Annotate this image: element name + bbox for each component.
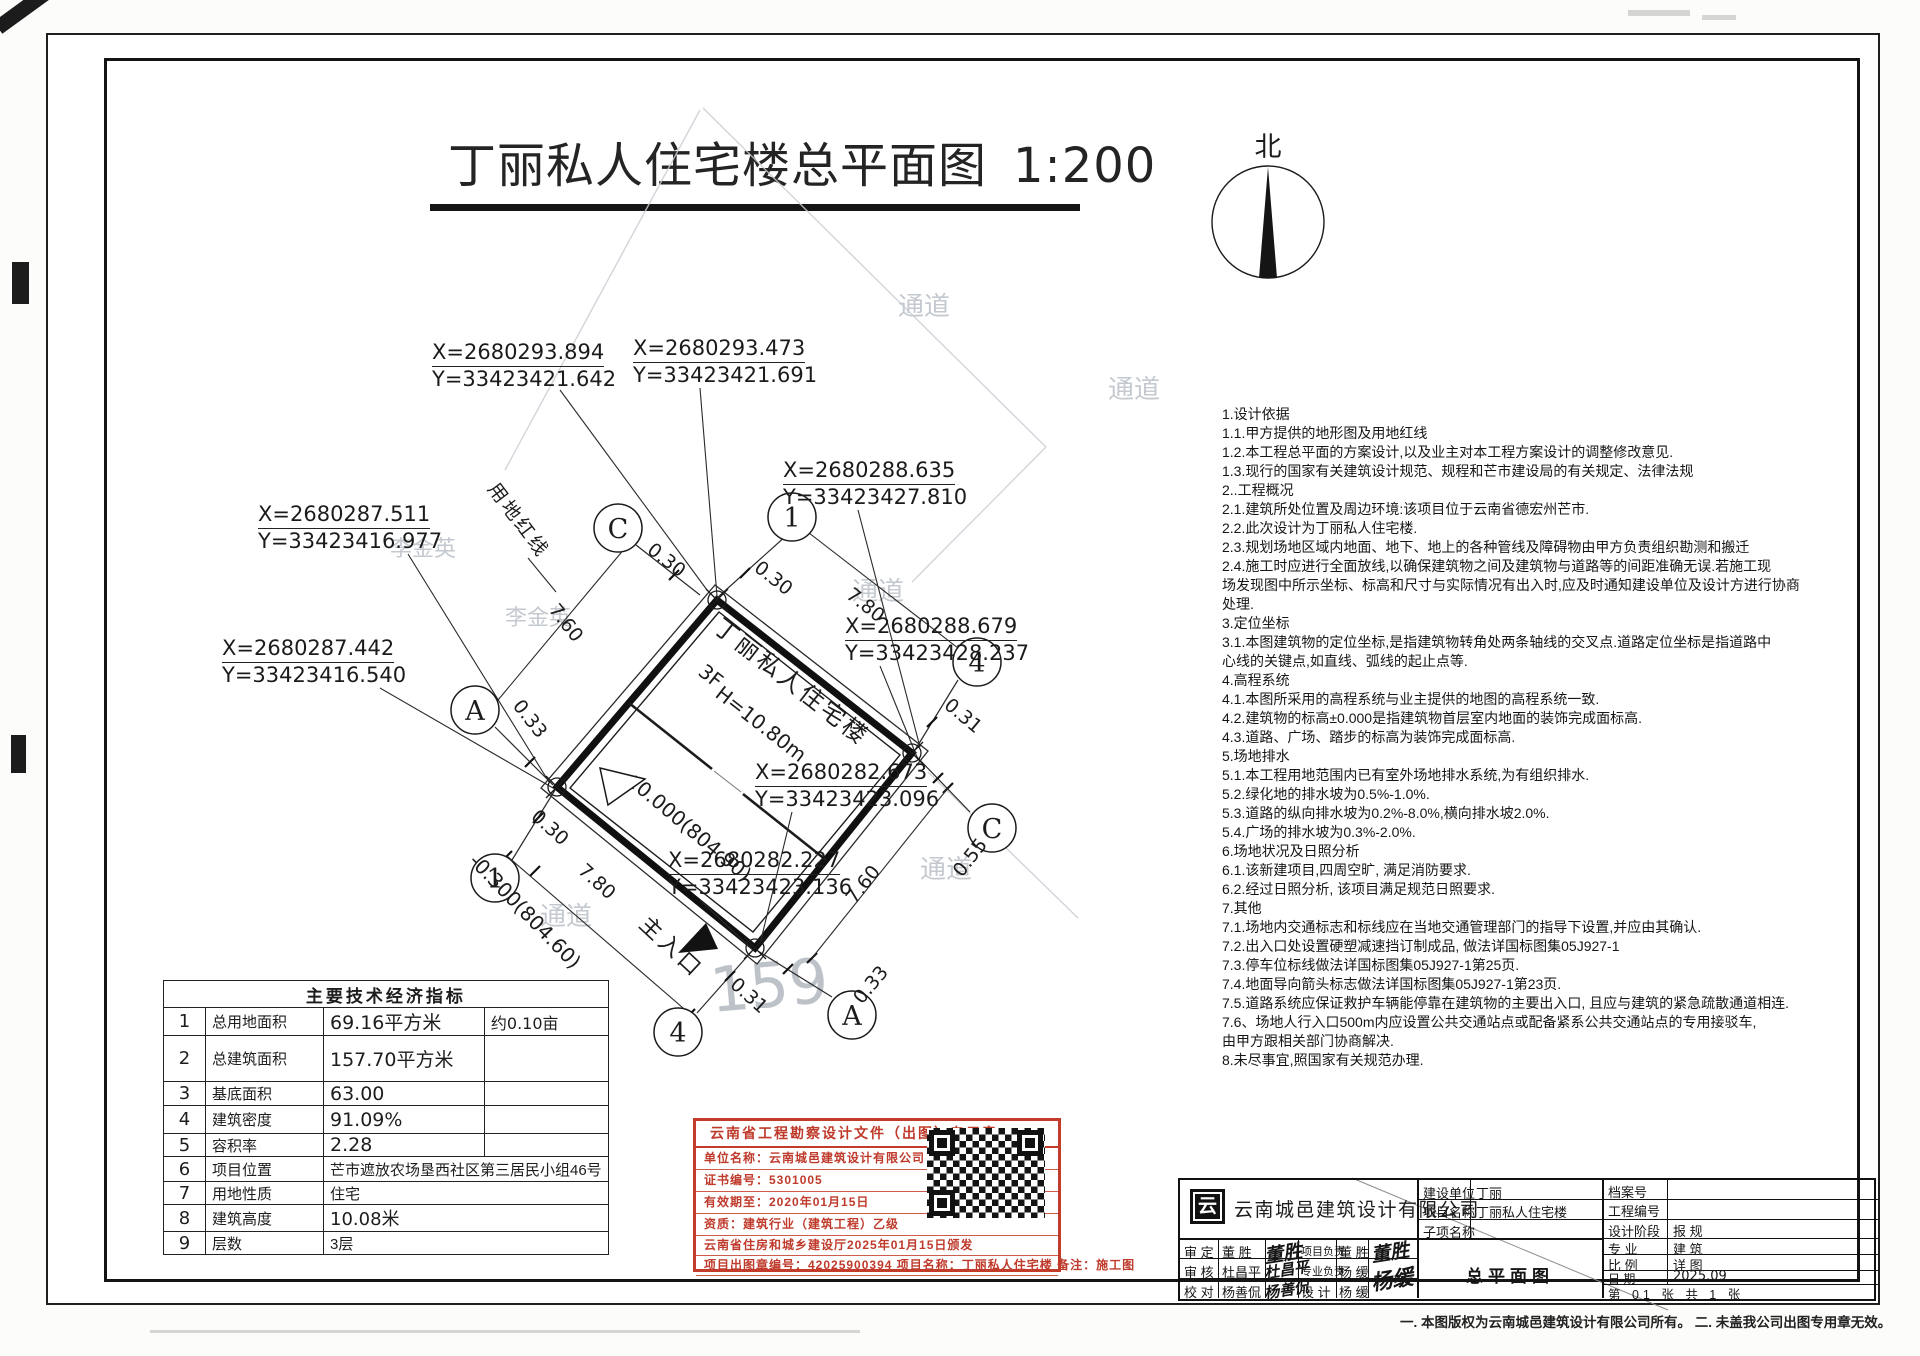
note-line: 2..工程概况	[1222, 481, 1862, 500]
north-label: 北	[1255, 132, 1282, 162]
qr-finder	[929, 1130, 955, 1156]
dim-value: 0.30	[643, 539, 690, 582]
coord-y: Y=33423421.642	[432, 367, 616, 392]
coord-x: X=2680293.473	[633, 336, 805, 363]
table-row: 3 基底面积 63.00	[164, 1082, 609, 1106]
coord-y: Y=33423416.540	[222, 663, 406, 688]
note-line: 7.其他	[1222, 899, 1862, 918]
north-needle	[1259, 167, 1277, 278]
note-line: 7.3.停车位标线做法详国标图集05J927-1第25页.	[1222, 956, 1862, 975]
stamp-line: 项目出图章编号：42025900394 项目名称：丁丽私人住宅楼 备注：施工图	[696, 1256, 1058, 1276]
note-line: 5.3.道路的纵向排水坡为0.2%-8.0%,横向排水坡2.0%.	[1222, 804, 1862, 823]
note-line: 心线的关键点,如直线、弧线的起止点等.	[1222, 652, 1862, 671]
coord-y: Y=33423423.136	[668, 875, 852, 900]
table-row: 1 总用地面积 69.16平方米 约0.10亩	[164, 1008, 609, 1036]
titleblock-divider	[1667, 1180, 1668, 1284]
dim-value: 0.30	[527, 805, 573, 850]
ghost-label: 通道	[898, 291, 950, 321]
coord-label: X=2680287.511 Y=33423416.977	[258, 502, 442, 554]
official-red-stamp: 云南省工程勘察设计文件（出图）专用章 单位名称：云南城邑建筑设计有限公司 证书编…	[693, 1118, 1061, 1272]
stage-label: 设计阶段	[1608, 1221, 1660, 1240]
dim-value: 0.33	[508, 696, 551, 743]
table-row: 5 容积率 2.28	[164, 1134, 609, 1157]
coord-label: X=2680293.473 Y=33423421.691	[633, 336, 817, 388]
dim-value: 0.31	[940, 694, 987, 738]
note-line: 2.3.规划场地区域内地面、地下、地上的各种管线及障碍物由甲方负责组织勘测和搬迁	[1222, 538, 1862, 557]
note-line: 4.2.建筑物的标高±0.000是指建筑物首层室内地面的装饰完成面标高.	[1222, 709, 1862, 728]
role-name: 杨 缓	[1339, 1262, 1369, 1281]
date-value: 2025.09	[1673, 1269, 1727, 1284]
stamp-line: 云南省住房和城乡建设厅2025年01月15日颁发	[696, 1236, 1058, 1256]
note-line: 1.2.本工程总平面的方案设计,以及业主对本工程方案设计的调整修改意见.	[1222, 443, 1862, 462]
axis-bubble-label: C	[982, 814, 1003, 845]
note-line: 3.定位坐标	[1222, 614, 1862, 633]
note-line: 5.1.本工程用地范围内已有室外场地排水系统,为有组织排水.	[1222, 766, 1862, 785]
role-name: 杜昌平	[1222, 1262, 1261, 1281]
north-arrow: 北	[1212, 132, 1324, 278]
coord-label: X=2680287.442 Y=33423416.540	[222, 636, 406, 688]
table-row: 8 建筑高度 10.08米	[164, 1205, 609, 1232]
note-line: 6.1.该新建项目,四周空旷, 满足消防要求.	[1222, 861, 1862, 880]
sheet-info: 第 01 张 共 1 张	[1608, 1284, 1744, 1303]
note-line: 5.4.广场的排水坡为0.3%-2.0%.	[1222, 823, 1862, 842]
coord-x: X=2680287.442	[222, 636, 394, 663]
table-row: 6 项目位置 芒市遮放农场垦西社区第三居民小组46号	[164, 1157, 609, 1182]
note-line: 7.6、场地人行入口500m内应设置公共交通站点或配备紧系公共交通站点的专用接驳…	[1222, 1013, 1862, 1032]
coord-y: Y=33423416.977	[258, 529, 442, 554]
coord-y: Y=33423428.237	[845, 641, 1029, 666]
role-name: 董 胜	[1222, 1242, 1252, 1261]
coord-y: Y=33423423.096	[755, 787, 939, 812]
title-block: 云 云南城邑建筑设计有限公司 建设单位 丁丽 项目名称 丁丽私人住宅楼 子项名称…	[1178, 1178, 1876, 1301]
note-line: 5.2.绿化地的排水坡为0.5%-1.0%.	[1222, 785, 1862, 804]
note-line: 1.3.现行的国家有关建筑设计规范、规程和芒市建设局的有关规定、法律法规	[1222, 462, 1862, 481]
axis-bubble-label: A	[841, 1001, 862, 1032]
role-label: 审 定	[1184, 1242, 1214, 1261]
coord-label: X=2680288.679 Y=33423428.237	[845, 614, 1029, 666]
note-line: 6.场地状况及日照分析	[1222, 842, 1862, 861]
copyright-footnote: 一. 本图版权为云南城邑建筑设计有限公司所有。 二. 未盖我公司出图专用章无效。	[1400, 1311, 1891, 1331]
table-row: 4 建筑密度 91.09%	[164, 1106, 609, 1134]
coord-x: X=2680293.894	[432, 340, 604, 367]
note-line: 4.高程系统	[1222, 671, 1862, 690]
company-logo: 云	[1190, 1189, 1225, 1224]
qr-finder	[1017, 1130, 1043, 1156]
note-line: 2.4.施工时应进行全面放线,以确保建筑物之间及建筑物与道路等的间距准确无误.若…	[1222, 557, 1862, 576]
coord-label: X=2680288.635 Y=33423427.810	[783, 458, 967, 510]
project-label: 项目名称	[1423, 1202, 1475, 1221]
role-name: 杨 缓	[1339, 1282, 1369, 1301]
axis-bubble-label: C	[608, 514, 629, 545]
note-line: 7.1.场地内交通标志和标线应在当地交通管理部门的指导下设置,并应由其确认.	[1222, 918, 1862, 937]
archive-label: 档案号	[1608, 1182, 1647, 1201]
coord-x: X=2680282.673	[755, 760, 927, 787]
note-line: 2.1.建筑所处位置及周边环境:该项目位于云南省德宏州芒市.	[1222, 500, 1862, 519]
table-title: 主要技术经济指标	[164, 981, 609, 1008]
titleblock-divider	[1218, 1238, 1219, 1298]
table-row: 9 层数 3层	[164, 1232, 609, 1255]
qr-finder	[929, 1190, 955, 1216]
dim-value: 0.30	[750, 557, 797, 600]
coord-x: X=2680287.511	[258, 502, 430, 529]
subproject-label: 子项名称	[1423, 1222, 1475, 1241]
coord-x: X=2680282.227	[668, 848, 840, 875]
role-signature: 杨缓	[1369, 1261, 1415, 1297]
titleblock-divider	[1602, 1270, 1878, 1271]
coord-label: X=2680282.673 Y=33423423.096	[755, 760, 939, 812]
axis-bubble-label: A	[464, 696, 485, 727]
note-line: 4.3.道路、广场、踏步的标高为装饰完成面标高.	[1222, 728, 1862, 747]
coord-x: X=2680288.679	[845, 614, 1017, 641]
table-row: 2 总建筑面积 157.70平方米	[164, 1036, 609, 1082]
general-notes: 1.设计依据 1.1.甲方提供的地形图及用地红线 1.2.本工程总平面的方案设计…	[1222, 405, 1862, 1070]
note-line: 1.设计依据	[1222, 405, 1862, 424]
note-line: 2.2.此次设计为丁丽私人住宅楼.	[1222, 519, 1862, 538]
note-line: 7.5.道路系统应保证救护车辆能停靠在建筑物的主要出入口, 且应与建筑的紧急疏散…	[1222, 994, 1862, 1013]
dim-value: 7.80	[574, 859, 620, 904]
role-label: 校 对	[1184, 1282, 1214, 1301]
coord-y: Y=33423427.810	[783, 485, 967, 510]
coord-x: X=2680288.635	[783, 458, 955, 485]
role-label: 设 计	[1301, 1282, 1331, 1301]
titleblock-divider	[1602, 1254, 1878, 1255]
note-line: 6.2.经过日照分析, 该项目满足规范日照要求.	[1222, 880, 1862, 899]
project-value: 丁丽私人住宅楼	[1476, 1202, 1567, 1221]
job-label: 工程编号	[1608, 1201, 1660, 1220]
coord-y: Y=33423421.691	[633, 363, 817, 388]
note-line: 由甲方跟相关部门协商解决.	[1222, 1032, 1862, 1051]
note-line: 7.2.出入口处设置硬塑减速挡订制成品, 做法详国标图集05J927-1	[1222, 937, 1862, 956]
table-row: 7 用地性质 住宅	[164, 1182, 609, 1205]
note-line: 4.1.本图所采用的高程系统与业主提供的地图的高程系统一致.	[1222, 690, 1862, 709]
ghost-label: 通道	[1108, 374, 1160, 404]
note-line: 8.未尽事宜,照国家有关规范办理.	[1222, 1051, 1862, 1070]
note-line: 处理.	[1222, 595, 1862, 614]
coord-label: X=2680282.227 Y=33423423.136	[668, 848, 852, 900]
note-line: 3.1.本图建筑物的定位坐标,是指建筑物转角处两条轴线的交叉点.道路定位坐标是指…	[1222, 633, 1862, 652]
stage-value: 报 规	[1673, 1221, 1703, 1240]
note-line: 7.4.地面导向箭头标志做法详国标图集05J927-1第23页.	[1222, 975, 1862, 994]
note-line: 场发现图中所示坐标、标高和尺寸与实际情况有出入时,应及时通知建设单位及设计方进行…	[1222, 576, 1862, 595]
axis-bubble-label: 4	[669, 1018, 686, 1049]
note-line: 1.1.甲方提供的地形图及用地红线	[1222, 424, 1862, 443]
tech-indicator-table: 主要技术经济指标 1 总用地面积 69.16平方米 约0.10亩 2 总建筑面积…	[163, 980, 609, 1255]
note-line: 5.场地排水	[1222, 747, 1862, 766]
red-line-label: 用地红线	[483, 479, 554, 563]
qr-code	[927, 1128, 1045, 1218]
role-name: 董 胜	[1339, 1242, 1369, 1261]
coord-label: X=2680293.894 Y=33423421.642	[432, 340, 616, 392]
scanned-site-plan-sheet: { "sheet": { "title": "丁丽私人住宅楼总平面图", "sc…	[0, 0, 1920, 1356]
client-value: 丁丽	[1476, 1183, 1502, 1202]
client-label: 建设单位	[1423, 1183, 1475, 1202]
role-name: 杨善侃	[1222, 1282, 1261, 1301]
drawing-title-cell: 总平面图	[1435, 1262, 1585, 1287]
role-label: 审 核	[1184, 1262, 1214, 1281]
